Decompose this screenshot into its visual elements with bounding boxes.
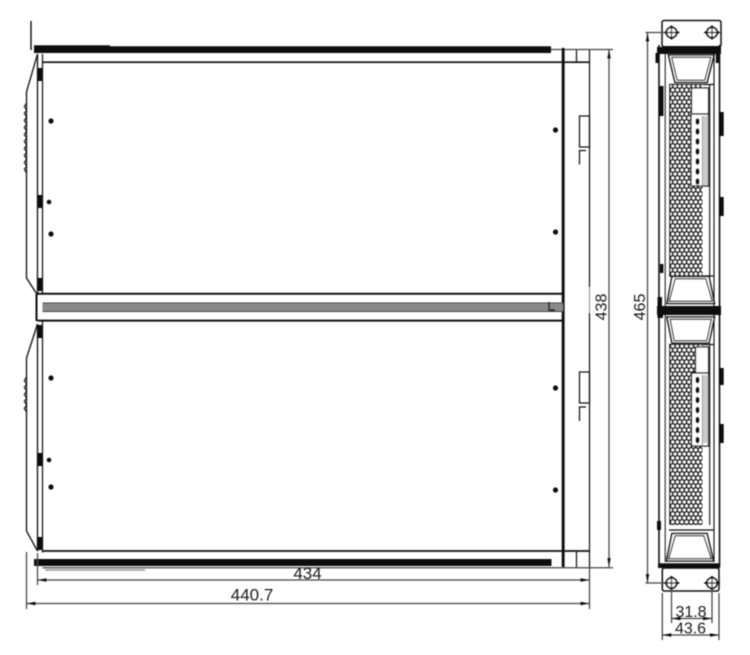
svg-text:465: 465 xyxy=(632,294,649,321)
svg-text:434: 434 xyxy=(293,564,321,583)
svg-text:31.8: 31.8 xyxy=(675,604,706,621)
svg-text:43.6: 43.6 xyxy=(675,621,706,638)
svg-text:440.7: 440.7 xyxy=(231,586,274,605)
svg-text:438: 438 xyxy=(594,294,611,321)
